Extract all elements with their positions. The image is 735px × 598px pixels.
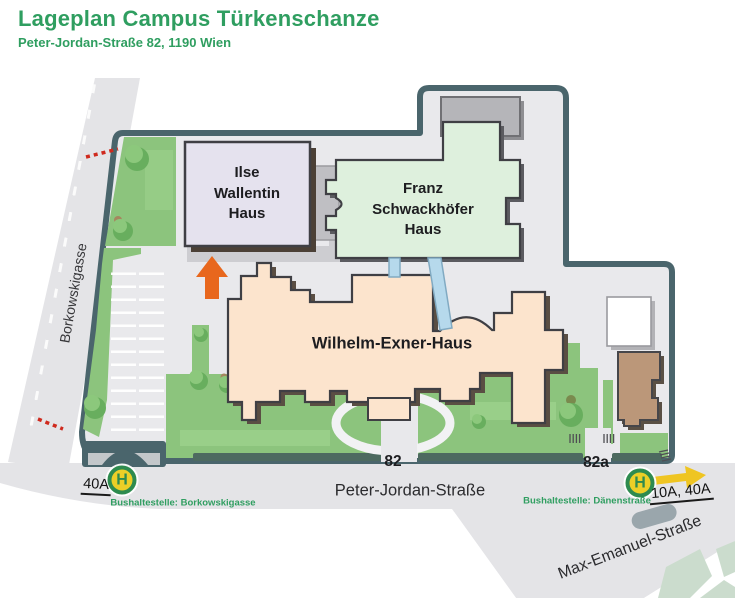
campus-map: Ilse Wallentin Haus Franz Schwackhöfer H… (0, 0, 735, 598)
lageplan-campus-map-page: Lageplan Campus Türkenschanze Peter-Jord… (0, 0, 735, 598)
page-title: Lageplan Campus Türkenschanze (18, 6, 380, 32)
bus-lines-text: 40A (81, 476, 112, 497)
campus-gate-west (82, 441, 166, 467)
map-header: Lageplan Campus Türkenschanze Peter-Jord… (18, 6, 380, 50)
bus-lines-label-west: 40A (81, 476, 112, 497)
parking-stripes (139, 262, 164, 437)
building-ilse-wallentin-shape (185, 142, 316, 252)
parking-stripes (111, 262, 136, 437)
page-subtitle: Peter-Jordan-Straße 82, 1190 Wien (18, 35, 380, 50)
bus-stop-icon-west: H (108, 466, 137, 495)
bus-stop-letter: H (116, 472, 128, 488)
bus-stop-letter: H (634, 475, 646, 491)
bus-stop-caption-east: Bushaltestelle: Dänenstraße (523, 496, 651, 507)
bus-stop-caption-west: Bushaltestelle: Borkowskigasse (110, 498, 255, 509)
building-white-shape (607, 297, 655, 350)
